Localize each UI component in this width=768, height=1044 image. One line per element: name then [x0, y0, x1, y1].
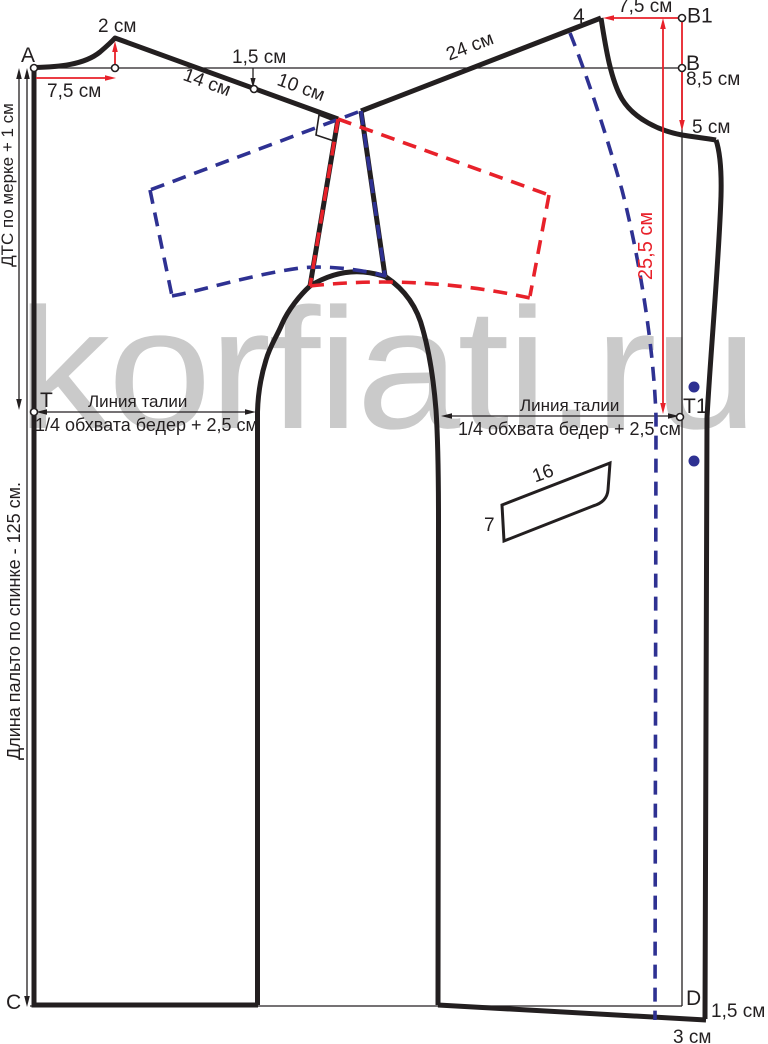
svg-text:7: 7 — [484, 515, 495, 536]
svg-text:Длина пальто по спинке - 125 с: Длина пальто по спинке - 125 см. — [4, 482, 24, 760]
svg-text:1/4 обхвата бедер + 2,5 см: 1/4 обхвата бедер + 2,5 см — [458, 419, 681, 439]
svg-text:1/4 обхвата бедер + 2,5 см: 1/4 обхвата бедер + 2,5 см — [35, 415, 258, 435]
svg-text:1,5 см: 1,5 см — [232, 47, 286, 68]
svg-text:D: D — [686, 987, 701, 1010]
svg-text:5 см: 5 см — [692, 117, 730, 138]
svg-text:A: A — [21, 44, 35, 67]
svg-text:ДТС по мерке + 1 см: ДТС по мерке + 1 см — [0, 103, 17, 267]
svg-text:2 см: 2 см — [98, 16, 136, 37]
svg-text:7,5 см: 7,5 см — [618, 0, 672, 17]
svg-text:25,5 см: 25,5 см — [635, 212, 657, 280]
svg-text:Линия талии: Линия талии — [88, 392, 187, 411]
svg-text:B1: B1 — [687, 5, 713, 28]
svg-text:T1: T1 — [683, 395, 708, 418]
svg-text:8,5 см: 8,5 см — [686, 69, 740, 90]
svg-text:3 см: 3 см — [673, 1027, 711, 1044]
svg-text:C: C — [6, 991, 21, 1014]
svg-text:Линия талии: Линия талии — [520, 396, 619, 415]
svg-text:4: 4 — [573, 5, 585, 28]
svg-text:T: T — [40, 389, 53, 412]
svg-text:7,5 см: 7,5 см — [47, 81, 101, 102]
svg-text:1,5 см: 1,5 см — [711, 1001, 765, 1022]
